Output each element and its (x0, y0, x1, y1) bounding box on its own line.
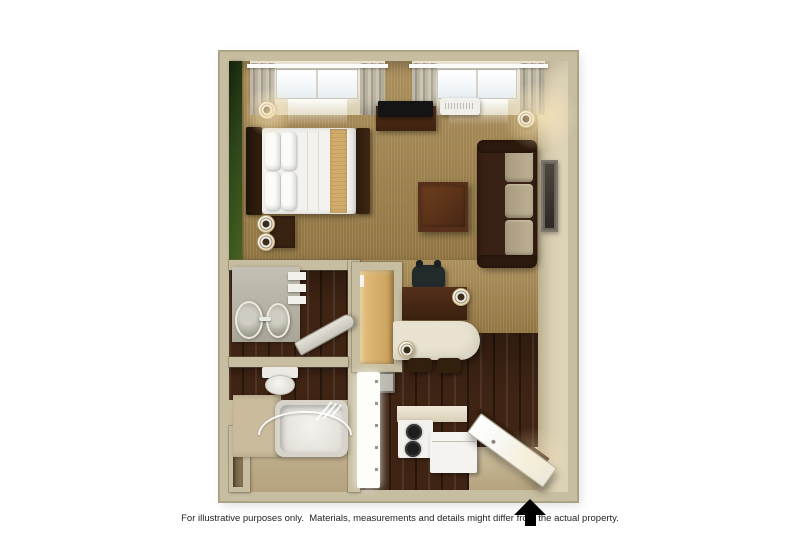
sofa-cushion (505, 220, 533, 256)
shower-head-spray (319, 399, 347, 427)
table-lamp-icon (257, 233, 275, 251)
window-mullion (316, 70, 318, 98)
burner-icon (406, 424, 422, 440)
floor-plan-render (219, 51, 578, 502)
counter-lamp-icon (398, 341, 415, 358)
ac-unit (440, 98, 480, 115)
desk-lamp-icon (452, 288, 470, 306)
burner-icon (405, 441, 421, 457)
curtain-rod (409, 64, 548, 68)
floor-plan-page: { "image": { "kind": "3D studio suite fl… (0, 0, 800, 560)
towel-shelf (288, 272, 306, 280)
duvet-seam (307, 131, 308, 211)
window-glass (437, 69, 517, 99)
floor-lamp-icon (517, 110, 535, 128)
coffee-table (418, 182, 468, 232)
tv (378, 101, 433, 117)
coffee-table-top (421, 185, 465, 227)
pillow (281, 132, 296, 170)
sofa (477, 140, 537, 268)
wall-vanity-bathroom (229, 357, 348, 367)
closet-shelving (360, 270, 394, 364)
table-lamp-icon (257, 215, 275, 233)
window-mullion (476, 70, 478, 98)
pantry-door (357, 372, 380, 488)
bed-runner (330, 129, 347, 213)
pillow (265, 132, 280, 170)
bar-stool (408, 358, 432, 372)
curtain-rod (247, 64, 388, 68)
disclaimer-text: For illustrative purposes only. Material… (0, 513, 800, 524)
right-wall-face (538, 61, 568, 492)
arrow-head (514, 499, 546, 515)
wall-sconce-lamp-icon (258, 101, 276, 119)
closet-door-latch (360, 275, 364, 287)
sofa-cushion (505, 148, 533, 182)
toilet (265, 375, 295, 395)
faucet-icon (259, 317, 271, 321)
window-light-glow (288, 99, 347, 125)
bar-stool (437, 358, 461, 373)
green-accent-wall (229, 61, 242, 260)
sofa-armrest (477, 255, 537, 268)
refrigerator-door-seam (432, 441, 475, 442)
wall-art-canvas (545, 164, 554, 228)
kitchen-sink (378, 372, 395, 393)
arrow-stem (525, 515, 536, 526)
bed-headboard (246, 127, 262, 215)
sofa-cushion (505, 184, 533, 218)
duvet-seam (318, 131, 319, 211)
pillow (265, 172, 280, 210)
towel-shelf (288, 284, 306, 292)
entrance-arrow-icon (514, 499, 546, 527)
curtain-icon (520, 63, 545, 115)
sofa-armrest (477, 140, 537, 153)
stove (398, 420, 433, 458)
wall-art (541, 160, 558, 232)
towel-shelf (288, 296, 306, 304)
window-glass (276, 69, 358, 99)
bed-footboard (356, 128, 370, 214)
pillow (281, 172, 296, 210)
refrigerator (430, 432, 477, 473)
